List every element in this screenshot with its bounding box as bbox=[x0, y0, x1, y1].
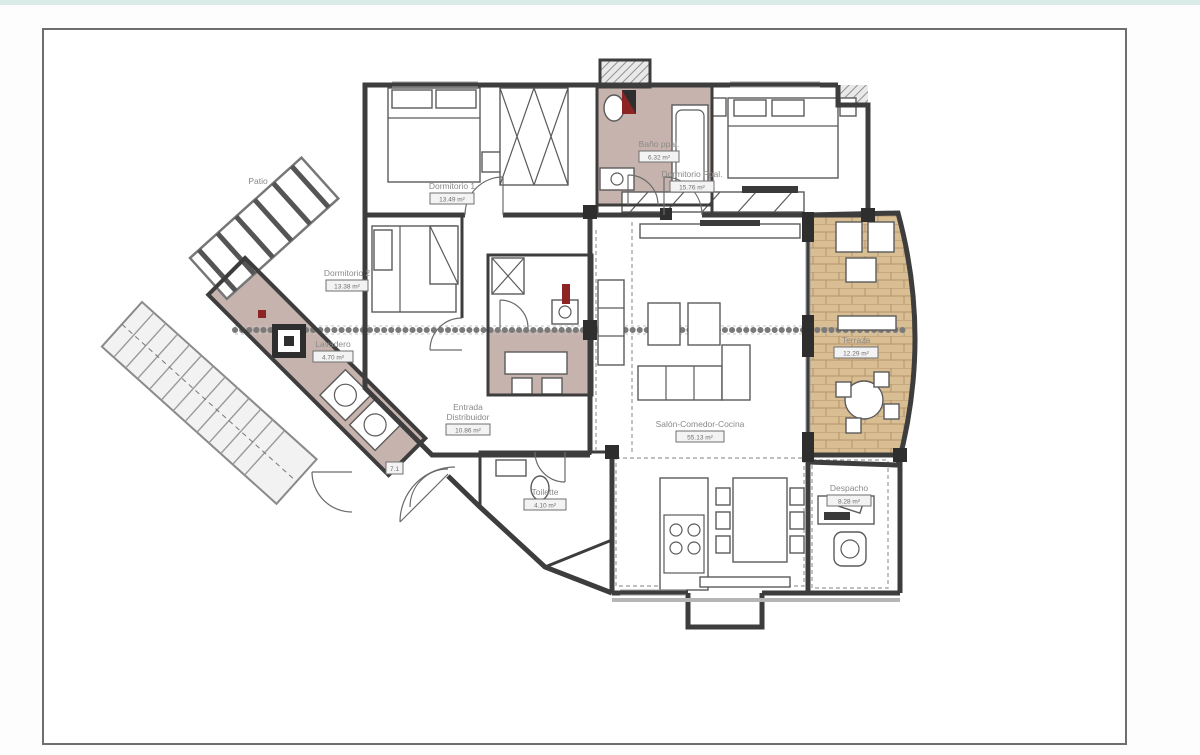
area-dormitorio2: 13.38 m² bbox=[334, 284, 360, 291]
nightstand bbox=[482, 152, 502, 172]
label-lavadero: Lavadero bbox=[315, 339, 351, 349]
armchair bbox=[648, 303, 680, 345]
chair bbox=[716, 512, 730, 529]
vanity bbox=[505, 352, 567, 374]
toilet bbox=[604, 95, 624, 121]
planter bbox=[838, 316, 896, 330]
chair bbox=[716, 488, 730, 505]
label-salon: Salón-Comedor-Cocina bbox=[656, 419, 745, 429]
chair bbox=[884, 404, 899, 419]
label-toilette: Toilette bbox=[532, 487, 559, 497]
stool bbox=[512, 378, 532, 394]
chair bbox=[716, 536, 730, 553]
sink bbox=[496, 460, 526, 476]
area-terraza: 12.29 m² bbox=[843, 351, 869, 358]
shelving bbox=[598, 280, 624, 365]
sideboard bbox=[640, 224, 800, 238]
label-despacho: Despacho bbox=[830, 483, 869, 493]
chair bbox=[846, 418, 861, 433]
pillow bbox=[734, 100, 766, 116]
red-mark bbox=[258, 310, 266, 318]
stool bbox=[542, 378, 562, 394]
label-entrada-line2: Distribuidor bbox=[447, 412, 490, 422]
keyboard bbox=[824, 512, 850, 520]
area-bano-ppal: 6.32 m² bbox=[648, 155, 671, 162]
window-sill bbox=[700, 577, 790, 587]
chair bbox=[790, 536, 804, 553]
area-despacho: 8.28 m² bbox=[838, 499, 861, 506]
label-dormitorio1: Dormitorio 1 bbox=[429, 181, 476, 191]
area-dormitorio-ppal: 15.76 m² bbox=[679, 185, 705, 192]
floorplan-drawing: Patio Dormitorio 1 13.49 m² Dormitorio P… bbox=[0, 0, 1200, 755]
fixture-red-mark bbox=[562, 284, 570, 304]
tv bbox=[742, 186, 798, 193]
lounge-chair bbox=[868, 222, 894, 252]
screenshot-root: Patio Dormitorio 1 13.49 m² Dormitorio P… bbox=[0, 0, 1200, 755]
side-table bbox=[846, 258, 876, 282]
sofa bbox=[638, 366, 722, 400]
chair bbox=[874, 372, 889, 387]
pillow bbox=[436, 90, 476, 108]
label-patio: Patio bbox=[248, 176, 268, 186]
office-chair bbox=[834, 532, 866, 566]
area-lavadero: 4.70 m² bbox=[322, 355, 345, 362]
pillow bbox=[374, 230, 392, 270]
area-dormitorio1: 13.49 m² bbox=[439, 197, 465, 204]
tv bbox=[700, 220, 760, 226]
pillow bbox=[772, 100, 804, 116]
sink bbox=[600, 168, 634, 190]
entry-marker: 7.1 bbox=[390, 466, 399, 473]
chaise bbox=[722, 345, 750, 400]
nightstand bbox=[712, 98, 726, 116]
area-toilette: 4.10 m² bbox=[534, 503, 557, 510]
pillow bbox=[392, 90, 432, 108]
label-bano-ppal: Baño ppal. bbox=[639, 139, 680, 149]
chair bbox=[790, 512, 804, 529]
area-salon: 55.13 m² bbox=[687, 435, 713, 442]
lounge-chair bbox=[836, 222, 862, 252]
dormitorio1-furniture bbox=[388, 88, 568, 185]
wardrobe bbox=[500, 88, 568, 185]
armchair bbox=[688, 303, 720, 345]
label-dormitorio2: Dormitorio 2 bbox=[324, 268, 371, 278]
area-entrada: 10.86 m² bbox=[455, 428, 481, 435]
dormitorio2-furniture bbox=[372, 226, 458, 312]
chair bbox=[836, 382, 851, 397]
dining-table bbox=[733, 478, 787, 562]
chair bbox=[790, 488, 804, 505]
label-dormitorio-ppal: Dormitorio Ppal. bbox=[662, 169, 723, 179]
label-entrada-line1: Entrada bbox=[453, 402, 483, 412]
label-terraza: Terraza bbox=[842, 335, 871, 345]
